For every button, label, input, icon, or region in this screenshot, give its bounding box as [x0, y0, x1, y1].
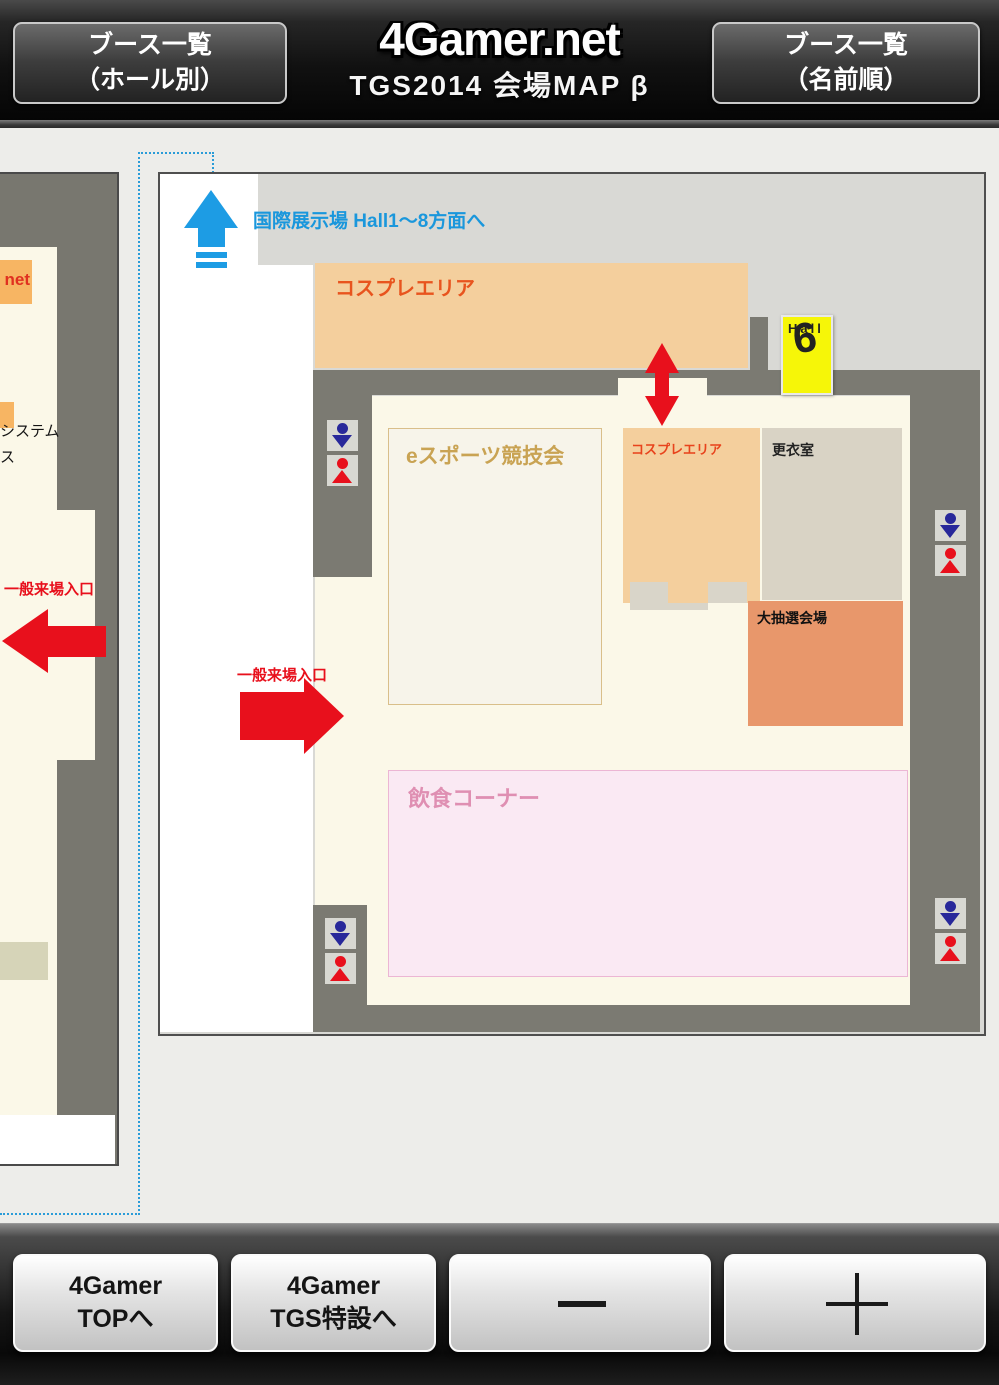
- left-entrance-label: 一般来場入口: [4, 578, 94, 599]
- left-entrance-arrow-icon: [2, 609, 48, 673]
- hall9-sign: Hall 9: [781, 315, 833, 395]
- area-changing-room: 更衣室: [762, 428, 902, 600]
- cosplay-booth-strip: [630, 603, 708, 610]
- area-food-corner-label: 飲食コーナー: [408, 781, 540, 813]
- toolbar: 4Gamer TOPへ 4Gamer TGS特設へ: [0, 1223, 999, 1385]
- restroom-male-icon: [935, 898, 966, 929]
- booth-list-by-name-label-2: （名前順）: [714, 63, 978, 98]
- selection-dotted-line-top: [138, 152, 214, 154]
- direction-up-arrow-icon: [184, 190, 238, 228]
- 4gamer-top-label-2: TOPへ: [15, 1303, 216, 1336]
- passage-arrow-shaft: [655, 372, 669, 397]
- restroom-male-icon: [935, 510, 966, 541]
- corridor-west: [160, 174, 258, 1032]
- direction-note-label: 国際展示場 Hall1～8方面へ: [253, 206, 485, 233]
- restroom-male-icon: [327, 420, 358, 451]
- 4gamer-tgs-label-2: TGS特設へ: [233, 1303, 434, 1336]
- area-esports: eスポーツ競技会: [388, 428, 602, 705]
- selection-dotted-line-vertical-short: [212, 152, 214, 173]
- header-separator: [0, 120, 999, 128]
- header-bar: ブース一覧 （ホール別） 4Gamer.net TGS2014 会場MAP β …: [0, 0, 999, 120]
- zoom-out-button[interactable]: [449, 1254, 711, 1352]
- area-cosplay-small: コスプレエリア: [623, 428, 760, 603]
- restroom-female-icon: [935, 933, 966, 964]
- restroom-female-icon: [327, 455, 358, 486]
- wall-bottom: [315, 1005, 980, 1032]
- cosplay-booth-box-1: [630, 582, 668, 603]
- area-cosplay-north-label: コスプレエリア: [335, 272, 475, 301]
- booth-partial-label-1: システム: [0, 420, 60, 441]
- 4gamer-top-label-1: 4Gamer: [15, 1270, 216, 1303]
- wall-stub-near-hall9-sign: [750, 317, 768, 395]
- 4gamer-top-button[interactable]: 4Gamer TOPへ: [13, 1254, 218, 1352]
- main-entrance-arrow-shaft: [240, 692, 304, 740]
- area-food-corner: 飲食コーナー: [388, 770, 908, 977]
- restroom-female-icon: [935, 545, 966, 576]
- booth-box-net: net: [0, 260, 32, 304]
- 4gamer-tgs-button[interactable]: 4Gamer TGS特設へ: [231, 1254, 436, 1352]
- 4gamer-tgs-label-1: 4Gamer: [233, 1270, 434, 1303]
- booth-partial-label-2: ス: [0, 446, 15, 467]
- passage-arrow-down-icon: [645, 396, 679, 426]
- minus-icon: [558, 1301, 606, 1307]
- map-tile-left[interactable]: net システム ス 一般来場入口: [0, 172, 119, 1166]
- area-lottery: 大抽選会場: [748, 601, 903, 726]
- restroom-male-icon: [325, 918, 356, 949]
- booth-list-by-name-label-1: ブース一覧: [714, 28, 978, 63]
- restroom-female-icon: [325, 953, 356, 984]
- area-cosplay-small-label: コスプレエリア: [631, 439, 722, 458]
- direction-up-arrow-shaft: [198, 228, 225, 247]
- passage-arrow-up-icon: [645, 343, 679, 373]
- booth-box-green: [0, 942, 48, 980]
- cosplay-booth-box-2: [708, 582, 747, 603]
- corridor-west-inner: [258, 265, 313, 1032]
- direction-arrow-bar-1: [196, 252, 227, 258]
- area-lottery-label: 大抽選会場: [757, 608, 827, 628]
- area-cosplay-north: コスプレエリア: [315, 263, 748, 368]
- area-esports-label: eスポーツ競技会: [406, 440, 564, 470]
- screen: ブース一覧 （ホール別） 4Gamer.net TGS2014 会場MAP β …: [0, 0, 999, 1385]
- selection-dotted-line-vertical: [138, 152, 140, 1215]
- booth-net-label: net: [5, 270, 31, 290]
- direction-arrow-bar-2: [196, 262, 227, 268]
- area-changing-room-label: 更衣室: [772, 440, 814, 460]
- map-tile-hall9[interactable]: コスプレエリア Hall 9 eスポーツ競技会 コスプレエリア 更衣室 大抽選会…: [158, 172, 986, 1036]
- left-tile-bottom-strip: [0, 1115, 115, 1166]
- hall9-sign-number: 9: [790, 312, 820, 363]
- booth-list-by-name-button[interactable]: ブース一覧 （名前順）: [712, 22, 980, 104]
- zoom-in-button[interactable]: [724, 1254, 986, 1352]
- main-entrance-arrow-icon: [304, 678, 344, 754]
- left-entrance-arrow-shaft: [48, 626, 106, 657]
- plus-icon-v: [855, 1273, 859, 1335]
- selection-dotted-line-bottom: [0, 1213, 140, 1215]
